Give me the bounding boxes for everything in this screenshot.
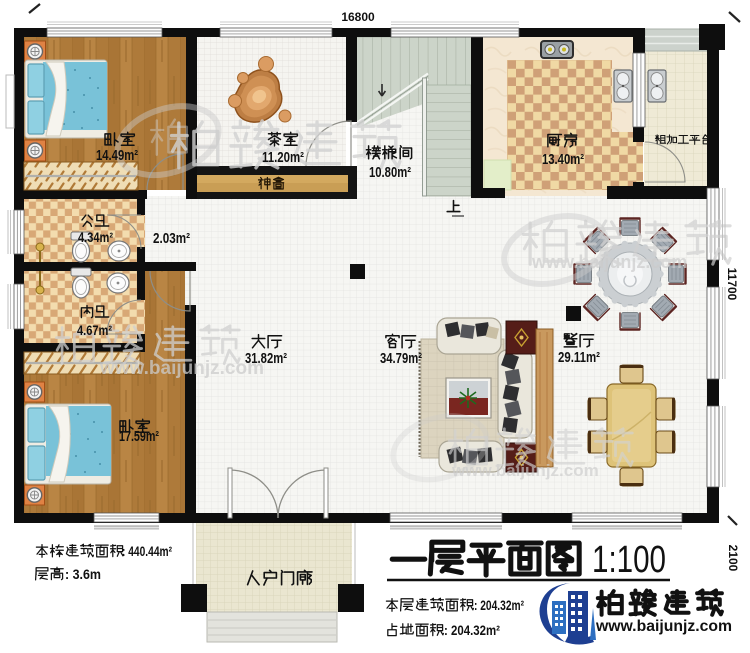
svg-text:: 3.6m: : 3.6m: [65, 567, 101, 582]
svg-text:10.80m²: 10.80m²: [369, 165, 411, 181]
svg-text:14.49m²: 14.49m²: [96, 148, 138, 164]
svg-text:: 204.32m²: : 204.32m²: [444, 623, 500, 638]
svg-text:4.34m²: 4.34m²: [78, 230, 113, 245]
svg-text:29.11m²: 29.11m²: [558, 350, 600, 366]
svg-text:2100: 2100: [726, 545, 740, 572]
svg-text:4.67m²: 4.67m²: [77, 323, 112, 338]
svg-text:31.82m²: 31.82m²: [245, 351, 287, 367]
svg-text:13.40m²: 13.40m²: [542, 152, 584, 168]
svg-text:34.79m²: 34.79m²: [380, 351, 422, 367]
svg-text:: 440.44m²: : 440.44m²: [122, 544, 172, 559]
svg-text:11700: 11700: [725, 268, 739, 301]
svg-text:www.baijunjz.com: www.baijunjz.com: [531, 252, 687, 272]
svg-text:: 204.32m²: : 204.32m²: [474, 598, 524, 613]
svg-text:www.baijunjz.com: www.baijunjz.com: [99, 358, 264, 379]
svg-text:2.03m²: 2.03m²: [153, 231, 190, 247]
svg-text:16800: 16800: [341, 10, 375, 24]
svg-text:1:100: 1:100: [592, 539, 666, 581]
svg-text:11.20m²: 11.20m²: [262, 150, 304, 166]
svg-text:17.59m²: 17.59m²: [119, 429, 159, 445]
svg-text:www.baijunjz.com: www.baijunjz.com: [595, 618, 732, 635]
